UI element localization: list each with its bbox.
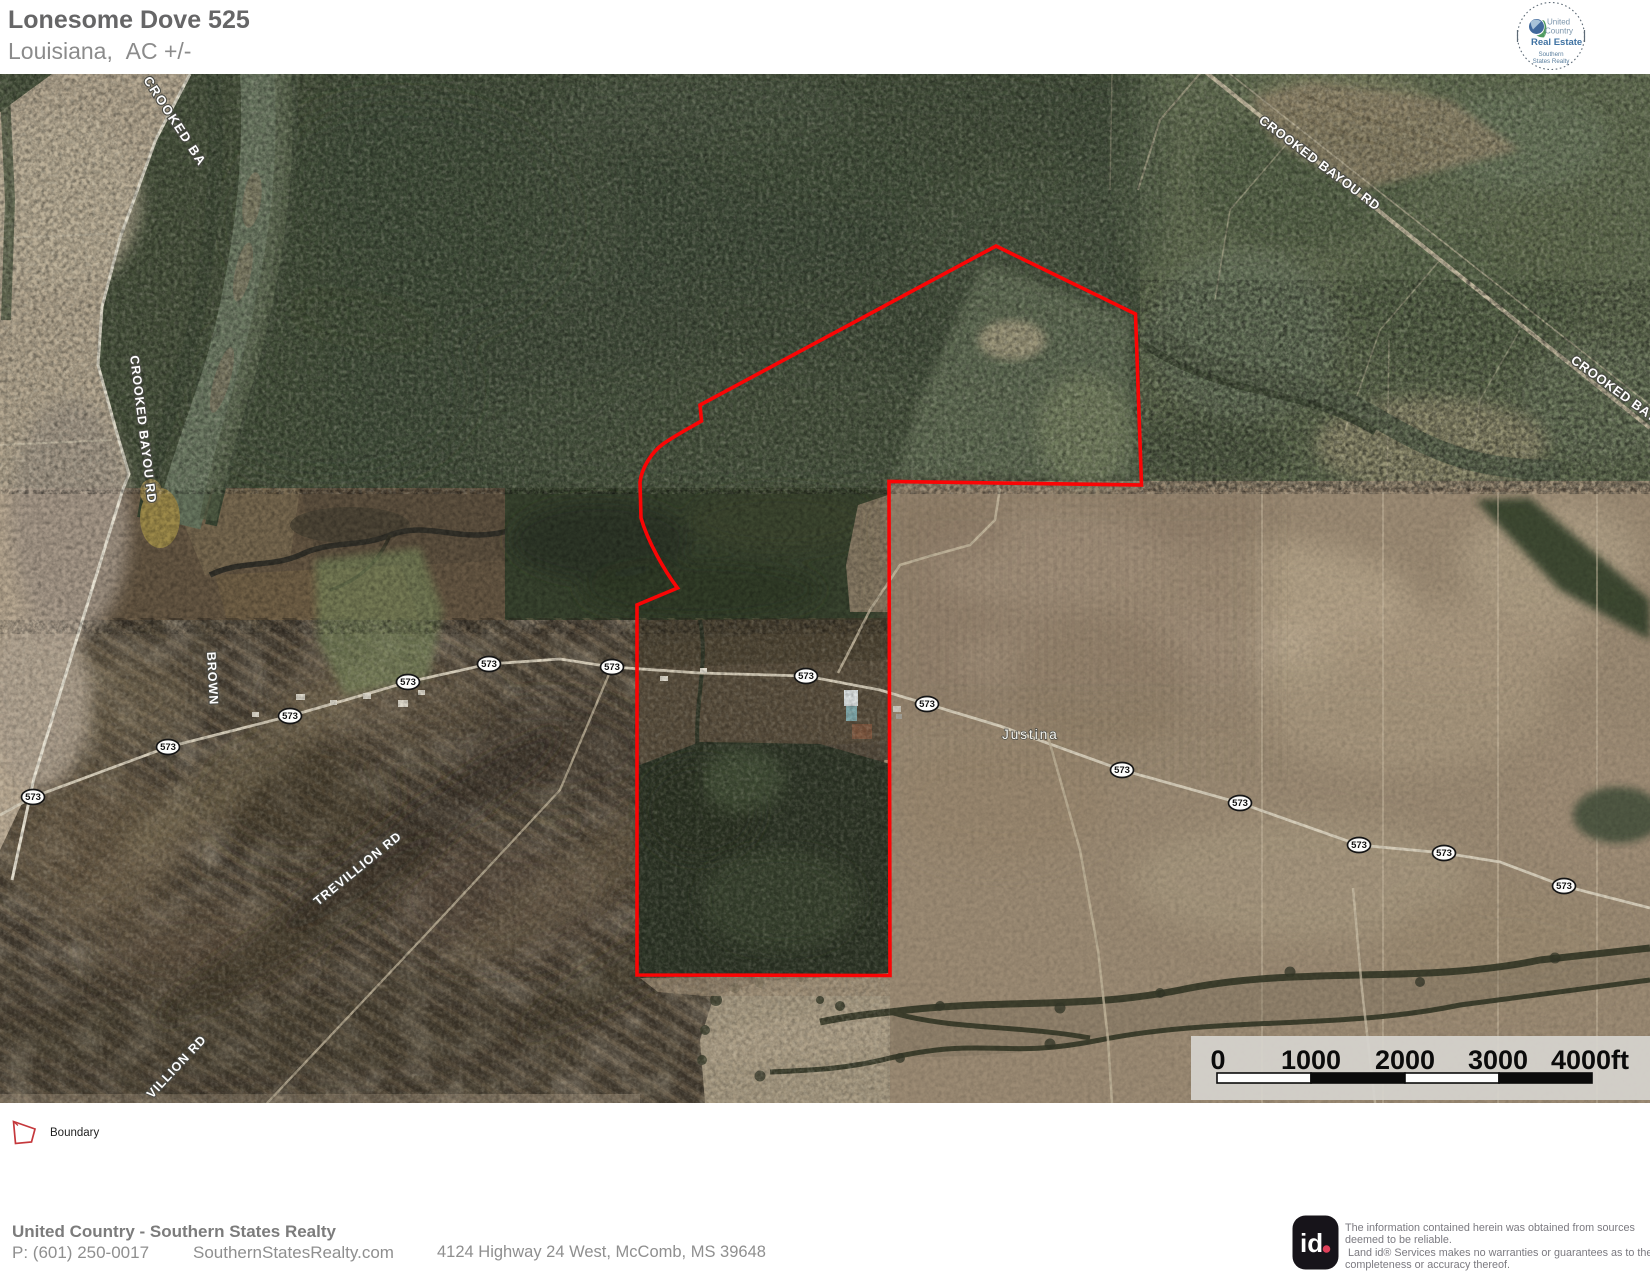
- svg-text:573: 573: [160, 742, 176, 753]
- svg-text:id: id: [1300, 1228, 1323, 1258]
- svg-text:4000ft: 4000ft: [1551, 1045, 1629, 1075]
- svg-text:573: 573: [1351, 840, 1367, 851]
- svg-text:Southern: Southern: [1538, 51, 1564, 58]
- svg-text:Country: Country: [1545, 27, 1573, 36]
- svg-text:2000: 2000: [1375, 1045, 1435, 1075]
- svg-text:573: 573: [481, 659, 497, 670]
- svg-text:BROWN: BROWN: [204, 651, 221, 705]
- svg-text:573: 573: [282, 711, 298, 722]
- svg-text:573: 573: [25, 792, 41, 803]
- svg-text:573: 573: [919, 699, 935, 710]
- svg-text:Real Estate: Real Estate: [1531, 37, 1582, 48]
- svg-text:0: 0: [1210, 1045, 1225, 1075]
- svg-text:1000: 1000: [1281, 1045, 1341, 1075]
- svg-text:573: 573: [400, 677, 416, 688]
- svg-text:States Realty: States Realty: [1533, 58, 1571, 65]
- svg-text:United: United: [1547, 18, 1570, 27]
- svg-text:573: 573: [604, 662, 620, 673]
- svg-text:573: 573: [1114, 765, 1130, 776]
- svg-text:573: 573: [1556, 881, 1572, 892]
- svg-text:Justina: Justina: [1002, 727, 1059, 742]
- svg-text:573: 573: [1232, 798, 1248, 809]
- svg-text:573: 573: [798, 671, 814, 682]
- svg-text:573: 573: [1436, 848, 1452, 859]
- svg-text:3000: 3000: [1468, 1045, 1528, 1075]
